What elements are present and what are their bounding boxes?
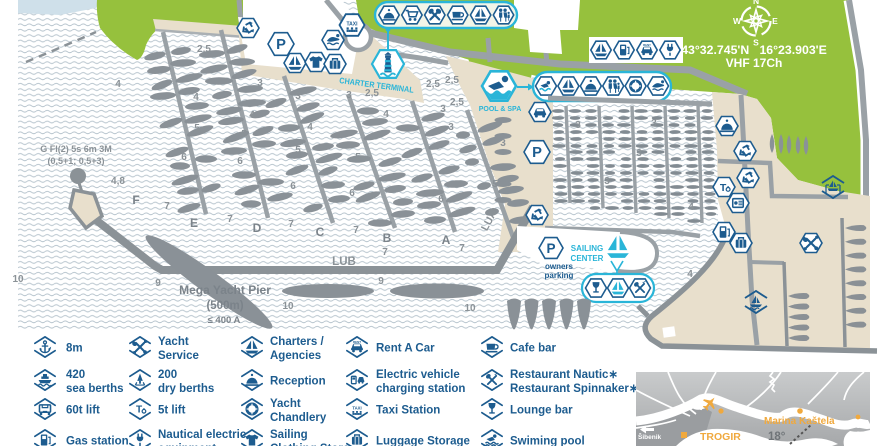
svg-text:2,5: 2,5 [197, 44, 211, 55]
svg-text:Gas station: Gas station [66, 436, 129, 446]
svg-text:3: 3 [636, 148, 642, 159]
svg-text:10: 10 [464, 303, 476, 314]
svg-text:6: 6 [349, 188, 355, 199]
svg-text:4,8: 4,8 [111, 176, 125, 187]
svg-text:3: 3 [604, 176, 610, 187]
svg-text:Restaurant Spinnaker∗∗: Restaurant Spinnaker∗∗ [510, 383, 648, 395]
svg-text:4: 4 [688, 202, 694, 213]
svg-text:RENT: RENT [643, 43, 651, 47]
svg-text:6: 6 [237, 156, 243, 167]
svg-text:4: 4 [115, 79, 121, 90]
svg-text:4: 4 [383, 109, 389, 120]
svg-text:Split: Split [856, 431, 871, 438]
svg-text:9: 9 [155, 278, 161, 289]
svg-text:N: N [753, 0, 759, 6]
svg-text:≤ 400 A: ≤ 400 A [208, 315, 241, 326]
svg-text:Electric vehicle: Electric vehicle [376, 369, 460, 381]
svg-text:owners: owners [545, 262, 574, 271]
svg-text:6: 6 [290, 181, 296, 192]
svg-text:3: 3 [500, 138, 506, 149]
svg-text:Cafe bar: Cafe bar [510, 343, 557, 355]
svg-text:sea berths: sea berths [66, 383, 124, 395]
svg-text:7: 7 [164, 201, 170, 212]
svg-text:Service: Service [158, 350, 199, 362]
svg-text:2,5: 2,5 [426, 79, 440, 90]
svg-text:60t lift: 60t lift [66, 405, 100, 417]
svg-text:2,5: 2,5 [450, 97, 464, 108]
svg-text:6: 6 [181, 152, 187, 163]
svg-text:TAXI: TAXI [346, 22, 358, 28]
svg-text:4: 4 [193, 92, 199, 103]
svg-text:8m: 8m [66, 343, 83, 355]
svg-text:Mega Yacht Pier: Mega Yacht Pier [179, 283, 271, 297]
svg-text:3: 3 [346, 90, 352, 101]
svg-text:Yacht: Yacht [270, 398, 301, 410]
svg-text:P: P [276, 37, 286, 53]
svg-text:Chandlery: Chandlery [270, 412, 327, 424]
svg-text:3: 3 [651, 118, 657, 129]
svg-text:7: 7 [227, 214, 233, 225]
svg-text:6: 6 [438, 194, 444, 205]
svg-text:2,5: 2,5 [445, 75, 459, 86]
svg-text:Swiming pool: Swiming pool [510, 436, 585, 446]
svg-text:CENTER: CENTER [571, 254, 604, 263]
svg-text:5: 5 [194, 123, 200, 134]
svg-text:4: 4 [307, 122, 313, 133]
svg-text:Solin: Solin [851, 421, 870, 430]
svg-text:Luggage Storage: Luggage Storage [376, 436, 470, 446]
svg-text:18°: 18° [768, 431, 786, 443]
svg-text:Agencies: Agencies [270, 350, 321, 362]
svg-text:Marina Kaštela: Marina Kaštela [764, 416, 835, 427]
svg-text:5: 5 [241, 129, 247, 140]
svg-text:P: P [546, 241, 555, 256]
svg-text:7: 7 [459, 243, 465, 254]
svg-text:3: 3 [575, 120, 581, 131]
svg-text:Nautical electric: Nautical electric [158, 429, 247, 441]
svg-text:TROGIR: TROGIR [700, 431, 741, 443]
svg-text:Šibenik: Šibenik [638, 432, 662, 441]
svg-text:E: E [190, 216, 198, 230]
svg-text:7: 7 [353, 225, 359, 236]
svg-text:E: E [772, 16, 778, 26]
svg-text:TAXI: TAXI [352, 405, 361, 410]
svg-text:200: 200 [158, 369, 177, 381]
svg-text:SAILING: SAILING [571, 244, 603, 253]
svg-text:B: B [383, 231, 392, 245]
svg-text:420: 420 [66, 369, 85, 381]
svg-text:4: 4 [249, 110, 255, 121]
svg-text:(500m): (500m) [206, 300, 243, 312]
svg-text:D: D [253, 221, 262, 235]
svg-text:parking: parking [545, 271, 574, 280]
svg-text:Lounge bar: Lounge bar [510, 405, 573, 417]
svg-text:A: A [442, 233, 451, 247]
svg-text:C: C [316, 225, 325, 239]
svg-text:G Fl(2) 5s 6m 3M: G Fl(2) 5s 6m 3M [40, 144, 112, 154]
svg-text:Taxi Station: Taxi Station [376, 405, 440, 417]
svg-text:W: W [733, 16, 742, 26]
svg-text:7: 7 [288, 219, 294, 230]
svg-text:3: 3 [448, 122, 454, 133]
svg-text:5: 5 [355, 152, 361, 163]
svg-text:Reception: Reception [270, 376, 326, 388]
svg-text:POOL & SPA: POOL & SPA [479, 106, 522, 113]
svg-text:charging station: charging station [376, 383, 465, 395]
svg-text:P: P [532, 145, 542, 161]
svg-text:3: 3 [257, 78, 263, 89]
svg-text:9: 9 [378, 276, 384, 287]
svg-text:(0,5+1; 0,5+3): (0,5+1; 0,5+3) [47, 156, 104, 166]
svg-text:3: 3 [295, 91, 301, 102]
svg-text:10: 10 [282, 301, 294, 312]
svg-text:LUB: LUB [332, 256, 356, 268]
svg-text:dry berths: dry berths [158, 383, 214, 395]
svg-text:VHF 17Ch: VHF 17Ch [726, 56, 783, 70]
svg-text:3: 3 [440, 104, 446, 115]
svg-text:Restaurant Nautic∗: Restaurant Nautic∗ [510, 369, 618, 381]
svg-text:Rent A Car: Rent A Car [376, 343, 435, 355]
svg-text:F: F [132, 193, 139, 207]
svg-text:5t lift: 5t lift [158, 405, 186, 417]
svg-text:Charters /: Charters / [270, 336, 324, 348]
svg-text:7: 7 [382, 247, 388, 258]
svg-text:5: 5 [295, 145, 301, 156]
svg-text:T: T [720, 182, 727, 194]
svg-text:10: 10 [12, 274, 24, 285]
svg-text:43°32.745'N 16°23.903'E: 43°32.745'N 16°23.903'E [681, 43, 827, 57]
svg-text:Sailing: Sailing [270, 429, 308, 441]
svg-text:RENT: RENT [353, 340, 361, 344]
svg-text:Yacht: Yacht [158, 336, 189, 348]
